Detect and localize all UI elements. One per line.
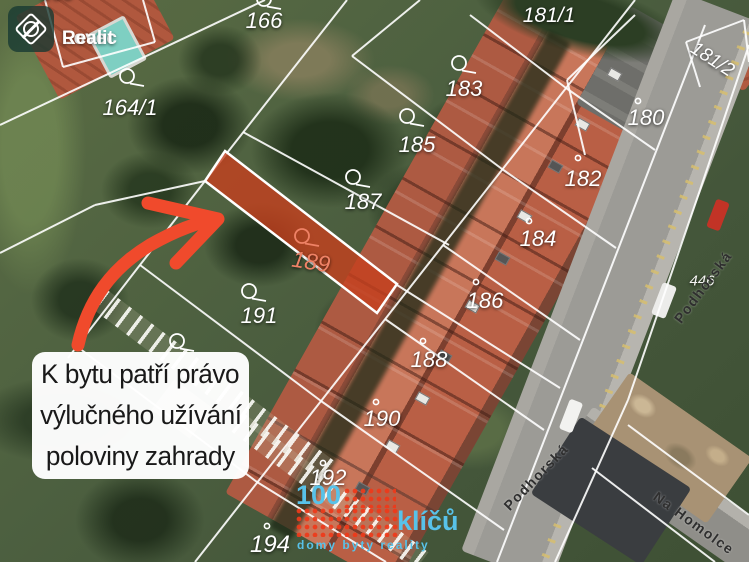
caption-line: K bytu patří právo	[41, 354, 239, 395]
watermark-word: klíčů	[397, 506, 459, 537]
agency-name-line2: Realit	[62, 29, 114, 49]
watermark-dot-pattern	[344, 488, 396, 508]
caption-box: K bytu patří právo výlučného užívání pol…	[32, 352, 249, 479]
agency-logo: Lovec Realit	[8, 6, 62, 52]
watermark-dot-pattern	[296, 508, 398, 537]
listing-photo: 163166164/1181/1183181/21801851871821891…	[0, 0, 749, 562]
lovec-realit-icon	[8, 6, 54, 52]
watermark-number: 100	[296, 480, 341, 511]
caption-line: poloviny zahrady	[46, 436, 235, 477]
caption-line: výlučného užívání	[40, 395, 241, 436]
watermark-tagline: domy byty reality	[297, 538, 430, 552]
